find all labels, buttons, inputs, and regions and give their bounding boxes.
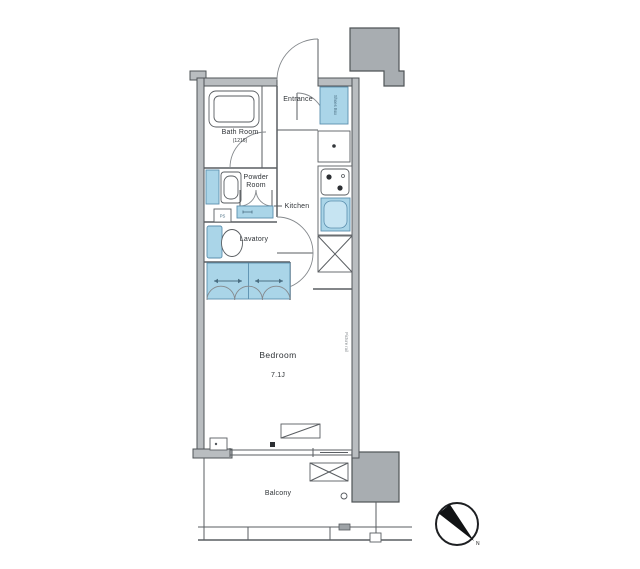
bath-tub [209,91,259,127]
refrigerator-space [318,131,350,162]
bedroom-label: Bedroom [259,350,296,360]
wall-top-b [318,78,354,86]
powder-double-doors [240,190,272,206]
wall-left [197,78,204,458]
shoes-box: Shoes Box [320,87,348,124]
entrance-door [277,39,324,120]
balcony-window [230,448,352,457]
powder-washbasin [206,170,241,204]
bath-room-size: (1216) [233,138,248,144]
kitchen-sink [321,198,350,231]
structure-block-bottom-right [352,452,399,502]
wall-right [352,78,359,458]
floor-plan-drawing: Bath Room (1216) Entrance Shoes Box Powd… [0,0,640,569]
washing-machine-space [318,236,352,272]
powder-room-label-2: Room [246,182,265,189]
closet [207,263,290,300]
ac-unit-space [310,463,348,481]
balcony-label: Balcony [265,490,292,497]
structure-block-top-right [350,28,404,86]
kitchen-counter-strip [237,206,273,218]
powder-room-label-1: Powder [244,174,269,181]
lavatory-label: Lavatory [240,236,269,243]
kitchen-label: Kitchen [285,203,310,210]
compass-north-label: N [476,541,480,547]
door-stopper-dot [270,442,275,447]
floor-plan-page: Bath Room (1216) Entrance Shoes Box Powd… [0,0,640,569]
svg-text:Shoes Box: Shoes Box [333,95,338,116]
svg-text:PS: PS [220,214,226,219]
compass: N [436,503,480,547]
bedroom-size: 7.1J [271,372,285,379]
bedroom-counter [281,424,320,438]
wall-top-a [197,78,277,86]
bath-room-label: Bath Room [222,129,259,136]
compass-needle [439,504,474,541]
toilet [207,226,243,258]
balcony-railing [198,502,412,542]
picture-rail-label: Picture rail [344,332,349,352]
balcony-drain [341,493,347,499]
entrance-label: Entrance [283,96,313,103]
utility-box-bottom-left [210,438,227,450]
pipe-space-box: PS [214,209,231,222]
